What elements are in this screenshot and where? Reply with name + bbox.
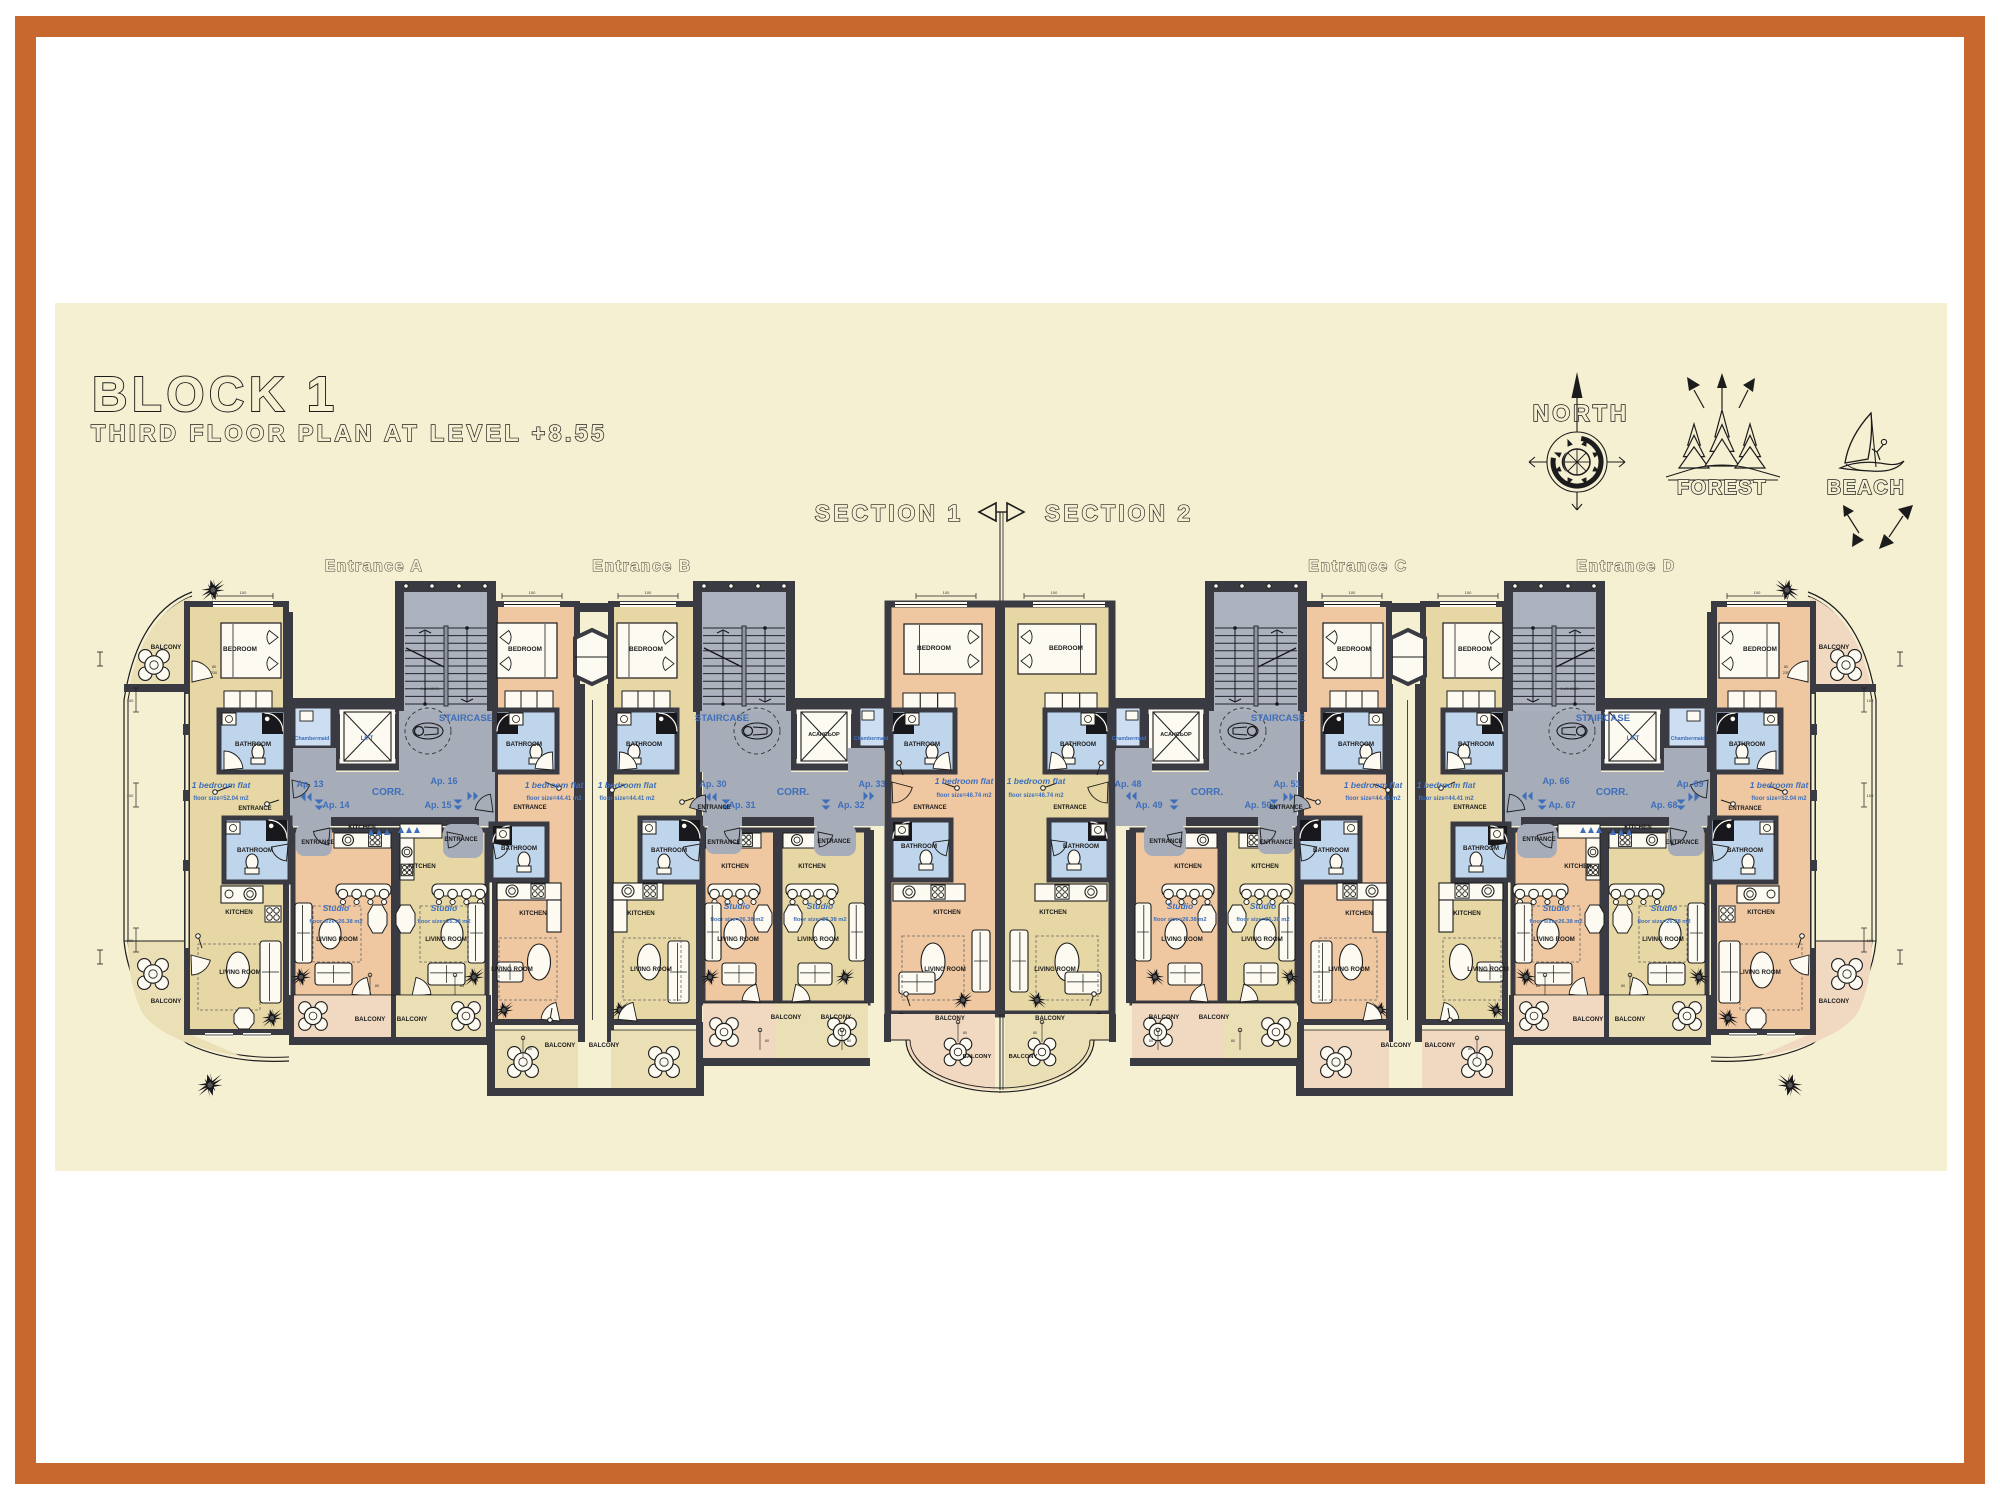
svg-text:Ap. 69: Ap. 69 — [1676, 779, 1703, 789]
svg-text:floor size=26.38 m2: floor size=26.38 m2 — [1529, 919, 1582, 925]
svg-text:BALCONY: BALCONY — [821, 1014, 852, 1021]
svg-text:Entrance D: Entrance D — [1576, 558, 1675, 575]
svg-text:KITCHEN: KITCHEN — [1174, 863, 1202, 870]
svg-text:BALCONY: BALCONY — [397, 1016, 428, 1023]
svg-text:BEDROOM: BEDROOM — [917, 645, 951, 652]
svg-text:BALCONY: BALCONY — [1009, 1054, 1038, 1060]
svg-text:floor size=26.38 m2: floor size=26.38 m2 — [1236, 917, 1289, 923]
svg-text:1 bedroom flat: 1 bedroom flat — [1007, 776, 1067, 786]
svg-text:Chambermaid: Chambermaid — [295, 736, 330, 742]
svg-text:80: 80 — [1468, 1047, 1472, 1051]
svg-text:2x15.65/30: 2x15.65/30 — [1561, 687, 1580, 691]
svg-text:BALCONY: BALCONY — [963, 1054, 992, 1060]
svg-text:Entrance A: Entrance A — [325, 558, 424, 575]
svg-text:100: 100 — [1465, 590, 1472, 595]
svg-text:LIVING ROOM: LIVING ROOM — [1642, 936, 1684, 943]
svg-text:АСАНСЬОР: АСАНСЬОР — [808, 732, 840, 738]
svg-text:100: 100 — [240, 590, 247, 595]
svg-text:KITCHEN: KITCHEN — [1747, 909, 1775, 916]
svg-text:Ap. 31: Ap. 31 — [728, 800, 755, 810]
svg-text:ENTRANCE: ENTRANCE — [1728, 806, 1761, 812]
svg-text:CORR.: CORR. — [372, 787, 404, 798]
svg-text:Ap. 67: Ap. 67 — [1548, 800, 1575, 810]
svg-text:KITCHEN: KITCHEN — [933, 909, 961, 916]
svg-text:floor size=26.38 m2: floor size=26.38 m2 — [417, 919, 470, 925]
svg-text:BATHROOM: BATHROOM — [1338, 741, 1374, 748]
svg-text:BLOCK 1: BLOCK 1 — [92, 368, 339, 422]
svg-text:80: 80 — [1536, 984, 1540, 988]
svg-text:ENTRANCE: ENTRANCE — [1522, 837, 1555, 843]
svg-text:floor size=26.38 m2: floor size=26.38 m2 — [793, 917, 846, 923]
svg-text:floor size=44.41 m2: floor size=44.41 m2 — [526, 796, 582, 802]
svg-text:80: 80 — [1033, 1031, 1037, 1035]
svg-text:BATHROOM: BATHROOM — [1063, 843, 1099, 850]
svg-text:floor size=26.38 m2: floor size=26.38 m2 — [1153, 917, 1206, 923]
svg-text:LIVING ROOM: LIVING ROOM — [797, 936, 839, 943]
svg-text:LIVING ROOM: LIVING ROOM — [316, 936, 358, 943]
svg-text:ENTRANCE: ENTRANCE — [1453, 805, 1486, 811]
svg-text:1 bedroom flat: 1 bedroom flat — [598, 780, 658, 790]
svg-text:ENTRANCE: ENTRANCE — [697, 805, 730, 811]
svg-text:Ap. 14: Ap. 14 — [322, 800, 349, 810]
svg-text:SECTION 1: SECTION 1 — [815, 500, 963, 526]
svg-text:BALCONY: BALCONY — [771, 1014, 802, 1021]
svg-text:BATHROOM: BATHROOM — [1463, 845, 1499, 852]
svg-text:LIVING ROOM: LIVING ROOM — [924, 966, 966, 973]
svg-text:Ap. 68: Ap. 68 — [1650, 800, 1677, 810]
svg-text:Studio: Studio — [1651, 903, 1677, 913]
svg-text:FOREST: FOREST — [1677, 477, 1767, 499]
svg-text:BATHROOM: BATHROOM — [237, 847, 273, 854]
svg-text:KITCHEN: KITCHEN — [1345, 910, 1373, 917]
svg-text:CORR.: CORR. — [1596, 787, 1628, 798]
svg-text:Ap. 16: Ap. 16 — [430, 776, 457, 786]
svg-text:Studio: Studio — [1543, 903, 1569, 913]
svg-text:LIVING ROOM: LIVING ROOM — [1328, 966, 1370, 973]
svg-text:1 bedroom flat: 1 bedroom flat — [935, 776, 995, 786]
svg-text:80: 80 — [212, 665, 216, 669]
svg-text:Ap. 32: Ap. 32 — [837, 800, 864, 810]
svg-text:BEDROOM: BEDROOM — [1337, 646, 1371, 653]
svg-text:BALCONY: BALCONY — [355, 1016, 386, 1023]
svg-text:BALCONY: BALCONY — [151, 998, 182, 1005]
svg-text:Studio: Studio — [724, 901, 750, 911]
svg-text:CORR.: CORR. — [1191, 787, 1223, 798]
svg-text:Ap. 33: Ap. 33 — [858, 779, 885, 789]
svg-text:floor size=44.41 m2: floor size=44.41 m2 — [1418, 796, 1474, 802]
svg-text:LIVING ROOM: LIVING ROOM — [425, 936, 467, 943]
svg-text:KITCHEN: KITCHEN — [519, 910, 547, 917]
svg-text:Ap. 51: Ap. 51 — [1273, 779, 1300, 789]
svg-text:floor size=52.04 m2: floor size=52.04 m2 — [193, 796, 249, 802]
svg-text:LIVING ROOM: LIVING ROOM — [1161, 936, 1203, 943]
svg-text:100: 100 — [1051, 590, 1058, 595]
svg-text:100: 100 — [943, 590, 950, 595]
svg-text:80: 80 — [460, 984, 464, 988]
svg-text:BATHROOM: BATHROOM — [1729, 741, 1765, 748]
svg-text:LIFT: LIFT — [1627, 736, 1640, 742]
svg-text:KITCHEN: KITCHEN — [225, 909, 253, 916]
svg-text:ENTRANCE: ENTRANCE — [444, 837, 477, 843]
svg-text:80: 80 — [528, 1047, 532, 1051]
svg-text:STAIRCASE: STAIRCASE — [439, 713, 493, 724]
svg-text:ENTRANCE: ENTRANCE — [1149, 839, 1182, 845]
svg-text:NORTH: NORTH — [1533, 400, 1630, 426]
svg-text:BALCONY: BALCONY — [1149, 1014, 1180, 1021]
svg-text:BALCONY: BALCONY — [1035, 1016, 1065, 1022]
svg-text:BALCONY: BALCONY — [1573, 1016, 1604, 1023]
svg-text:ENTRANCE: ENTRANCE — [1259, 840, 1292, 846]
svg-text:LIVING ROOM: LIVING ROOM — [1034, 966, 1076, 973]
svg-text:floor size=26.38 m2: floor size=26.38 m2 — [309, 919, 362, 925]
svg-text:Entrance B: Entrance B — [592, 558, 691, 575]
svg-text:BATHROOM: BATHROOM — [506, 741, 542, 748]
svg-text:80: 80 — [847, 1039, 851, 1043]
svg-text:1 bedroom flat: 1 bedroom flat — [1417, 780, 1477, 790]
svg-text:BATHROOM: BATHROOM — [1458, 741, 1494, 748]
svg-text:ENTRANCE: ENTRANCE — [817, 839, 850, 845]
svg-text:KITCHEN: KITCHEN — [721, 863, 749, 870]
svg-text:LIFT: LIFT — [361, 736, 374, 742]
svg-text:BATHROOM: BATHROOM — [235, 741, 271, 748]
svg-text:BEDROOM: BEDROOM — [1049, 645, 1083, 652]
svg-text:BATHROOM: BATHROOM — [1313, 847, 1349, 854]
svg-text:LIVING ROOM: LIVING ROOM — [1739, 969, 1781, 976]
svg-text:1 bedroom flat: 1 bedroom flat — [525, 780, 585, 790]
svg-text:100: 100 — [1867, 698, 1874, 703]
svg-text:ENTRANCE: ENTRANCE — [513, 805, 546, 811]
svg-text:Ap. 48: Ap. 48 — [1114, 779, 1141, 789]
svg-text:Ap. 30: Ap. 30 — [699, 779, 726, 789]
svg-text:100: 100 — [1867, 938, 1874, 943]
svg-text:80: 80 — [765, 1039, 769, 1043]
svg-text:80: 80 — [375, 984, 379, 988]
svg-text:BALCONY: BALCONY — [151, 644, 182, 651]
svg-text:100: 100 — [529, 590, 536, 595]
svg-text:BALCONY: BALCONY — [1819, 998, 1850, 1005]
svg-text:Ap. 49: Ap. 49 — [1135, 800, 1162, 810]
svg-text:Ap. 15: Ap. 15 — [424, 800, 451, 810]
svg-text:BALCONY: BALCONY — [1819, 644, 1850, 651]
svg-text:BALCONY: BALCONY — [1425, 1042, 1456, 1049]
svg-text:STAIRCASE: STAIRCASE — [695, 713, 749, 724]
svg-text:KITCHEN: KITCHEN — [408, 863, 436, 870]
svg-text:STAIRCASE: STAIRCASE — [1251, 713, 1305, 724]
svg-text:KITCHEN: KITCHEN — [798, 863, 826, 870]
svg-text:SECTION 2: SECTION 2 — [1045, 500, 1193, 526]
svg-text:floor size=44.41 m2: floor size=44.41 m2 — [1345, 796, 1401, 802]
svg-text:floor size=52.04 m2: floor size=52.04 m2 — [1751, 796, 1807, 802]
svg-text:1 bedroom flat: 1 bedroom flat — [1750, 780, 1810, 790]
svg-text:BATHROOM: BATHROOM — [1060, 741, 1096, 748]
svg-text:BEDROOM: BEDROOM — [223, 646, 257, 653]
svg-text:KITCHEN: KITCHEN — [348, 824, 376, 831]
svg-text:230: 230 — [1783, 671, 1789, 675]
svg-text:Studio: Studio — [1250, 901, 1276, 911]
svg-text:LIVING ROOM: LIVING ROOM — [491, 966, 533, 973]
svg-text:LIVING ROOM: LIVING ROOM — [1533, 936, 1575, 943]
svg-text:BATHROOM: BATHROOM — [1727, 847, 1763, 854]
svg-text:KITCHEN: KITCHEN — [1453, 910, 1481, 917]
svg-text:Chambermaid: Chambermaid — [1112, 736, 1147, 742]
svg-text:Chambermaid: Chambermaid — [854, 736, 889, 742]
svg-text:1 bedroom flat: 1 bedroom flat — [192, 780, 252, 790]
svg-text:Ap. 50: Ap. 50 — [1244, 800, 1271, 810]
svg-text:LIVING ROOM: LIVING ROOM — [1241, 936, 1283, 943]
svg-text:BEDROOM: BEDROOM — [1743, 646, 1777, 653]
svg-text:BATHROOM: BATHROOM — [626, 741, 662, 748]
svg-text:BATHROOM: BATHROOM — [501, 845, 537, 852]
svg-text:BATHROOM: BATHROOM — [904, 741, 940, 748]
svg-text:80: 80 — [1784, 665, 1788, 669]
svg-text:floor size=46.74 m2: floor size=46.74 m2 — [1008, 793, 1064, 799]
svg-text:LIVING ROOM: LIVING ROOM — [717, 936, 759, 943]
svg-text:BALCONY: BALCONY — [545, 1042, 576, 1049]
svg-text:BALCONY: BALCONY — [1199, 1014, 1230, 1021]
svg-text:BEDROOM: BEDROOM — [508, 646, 542, 653]
svg-text:Studio: Studio — [431, 903, 457, 913]
svg-text:100: 100 — [127, 938, 134, 943]
svg-text:BATHROOM: BATHROOM — [651, 847, 687, 854]
svg-text:100: 100 — [645, 590, 652, 595]
svg-text:100: 100 — [1867, 793, 1874, 798]
svg-text:80: 80 — [1149, 1039, 1153, 1043]
svg-text:LIVING ROOM: LIVING ROOM — [630, 966, 672, 973]
svg-text:CORR.: CORR. — [777, 787, 809, 798]
svg-text:Entrance C: Entrance C — [1308, 558, 1407, 575]
svg-text:BALCONY: BALCONY — [589, 1042, 620, 1049]
svg-text:Ap. 13: Ap. 13 — [296, 779, 323, 789]
svg-text:230: 230 — [211, 671, 217, 675]
svg-text:ENTRANCE: ENTRANCE — [238, 806, 271, 812]
svg-text:ENTRANCE: ENTRANCE — [1053, 805, 1086, 811]
svg-text:KITCHEN: KITCHEN — [1624, 824, 1652, 831]
svg-text:KITCHEN: KITCHEN — [627, 910, 655, 917]
svg-text:100: 100 — [127, 793, 134, 798]
svg-text:100: 100 — [1754, 590, 1761, 595]
svg-text:2x15.65/30: 2x15.65/30 — [421, 687, 440, 691]
svg-text:ENTRANCE: ENTRANCE — [913, 805, 946, 811]
svg-text:KITCHEN: KITCHEN — [1564, 863, 1592, 870]
svg-text:Chambermaid: Chambermaid — [1671, 736, 1706, 742]
svg-text:Studio: Studio — [807, 901, 833, 911]
svg-text:АСАНСЬОР: АСАНСЬОР — [1160, 732, 1192, 738]
svg-text:KITCHEN: KITCHEN — [1039, 909, 1067, 916]
svg-text:BALCONY: BALCONY — [1381, 1042, 1412, 1049]
svg-text:100: 100 — [1349, 590, 1356, 595]
svg-text:ENTRANCE: ENTRANCE — [1269, 805, 1302, 811]
svg-text:ENTRANCE: ENTRANCE — [1665, 840, 1698, 846]
svg-text:KITCHEN: KITCHEN — [1251, 863, 1279, 870]
svg-text:ENTRANCE: ENTRANCE — [707, 840, 740, 846]
svg-text:BEDROOM: BEDROOM — [629, 646, 663, 653]
svg-text:LIVING ROOM: LIVING ROOM — [1467, 966, 1509, 973]
svg-text:floor size=46.74 m2: floor size=46.74 m2 — [936, 793, 992, 799]
svg-text:80: 80 — [1231, 1039, 1235, 1043]
svg-text:80: 80 — [963, 1031, 967, 1035]
svg-text:THIRD FLOOR PLAN AT LEVEL +8.5: THIRD FLOOR PLAN AT LEVEL +8.55 — [91, 420, 607, 446]
svg-text:1 bedroom flat: 1 bedroom flat — [1344, 780, 1404, 790]
svg-text:100: 100 — [127, 698, 134, 703]
svg-text:floor size=26.38 m2: floor size=26.38 m2 — [1637, 919, 1690, 925]
svg-text:floor size=44.41 m2: floor size=44.41 m2 — [599, 796, 655, 802]
svg-text:ENTRANCE: ENTRANCE — [301, 840, 334, 846]
svg-text:floor size=26.38 m2: floor size=26.38 m2 — [710, 917, 763, 923]
svg-text:Ap. 66: Ap. 66 — [1542, 776, 1569, 786]
svg-text:BALCONY: BALCONY — [1615, 1016, 1646, 1023]
svg-text:Studio: Studio — [1167, 901, 1193, 911]
svg-text:80: 80 — [1621, 984, 1625, 988]
svg-text:BATHROOM: BATHROOM — [901, 843, 937, 850]
svg-text:Studio: Studio — [323, 903, 349, 913]
svg-text:STAIRCASE: STAIRCASE — [1576, 713, 1630, 724]
svg-text:BEDROOM: BEDROOM — [1458, 646, 1492, 653]
svg-text:BALCONY: BALCONY — [935, 1016, 965, 1022]
svg-text:BEACH: BEACH — [1827, 477, 1906, 499]
svg-text:LIVING ROOM: LIVING ROOM — [219, 969, 261, 976]
